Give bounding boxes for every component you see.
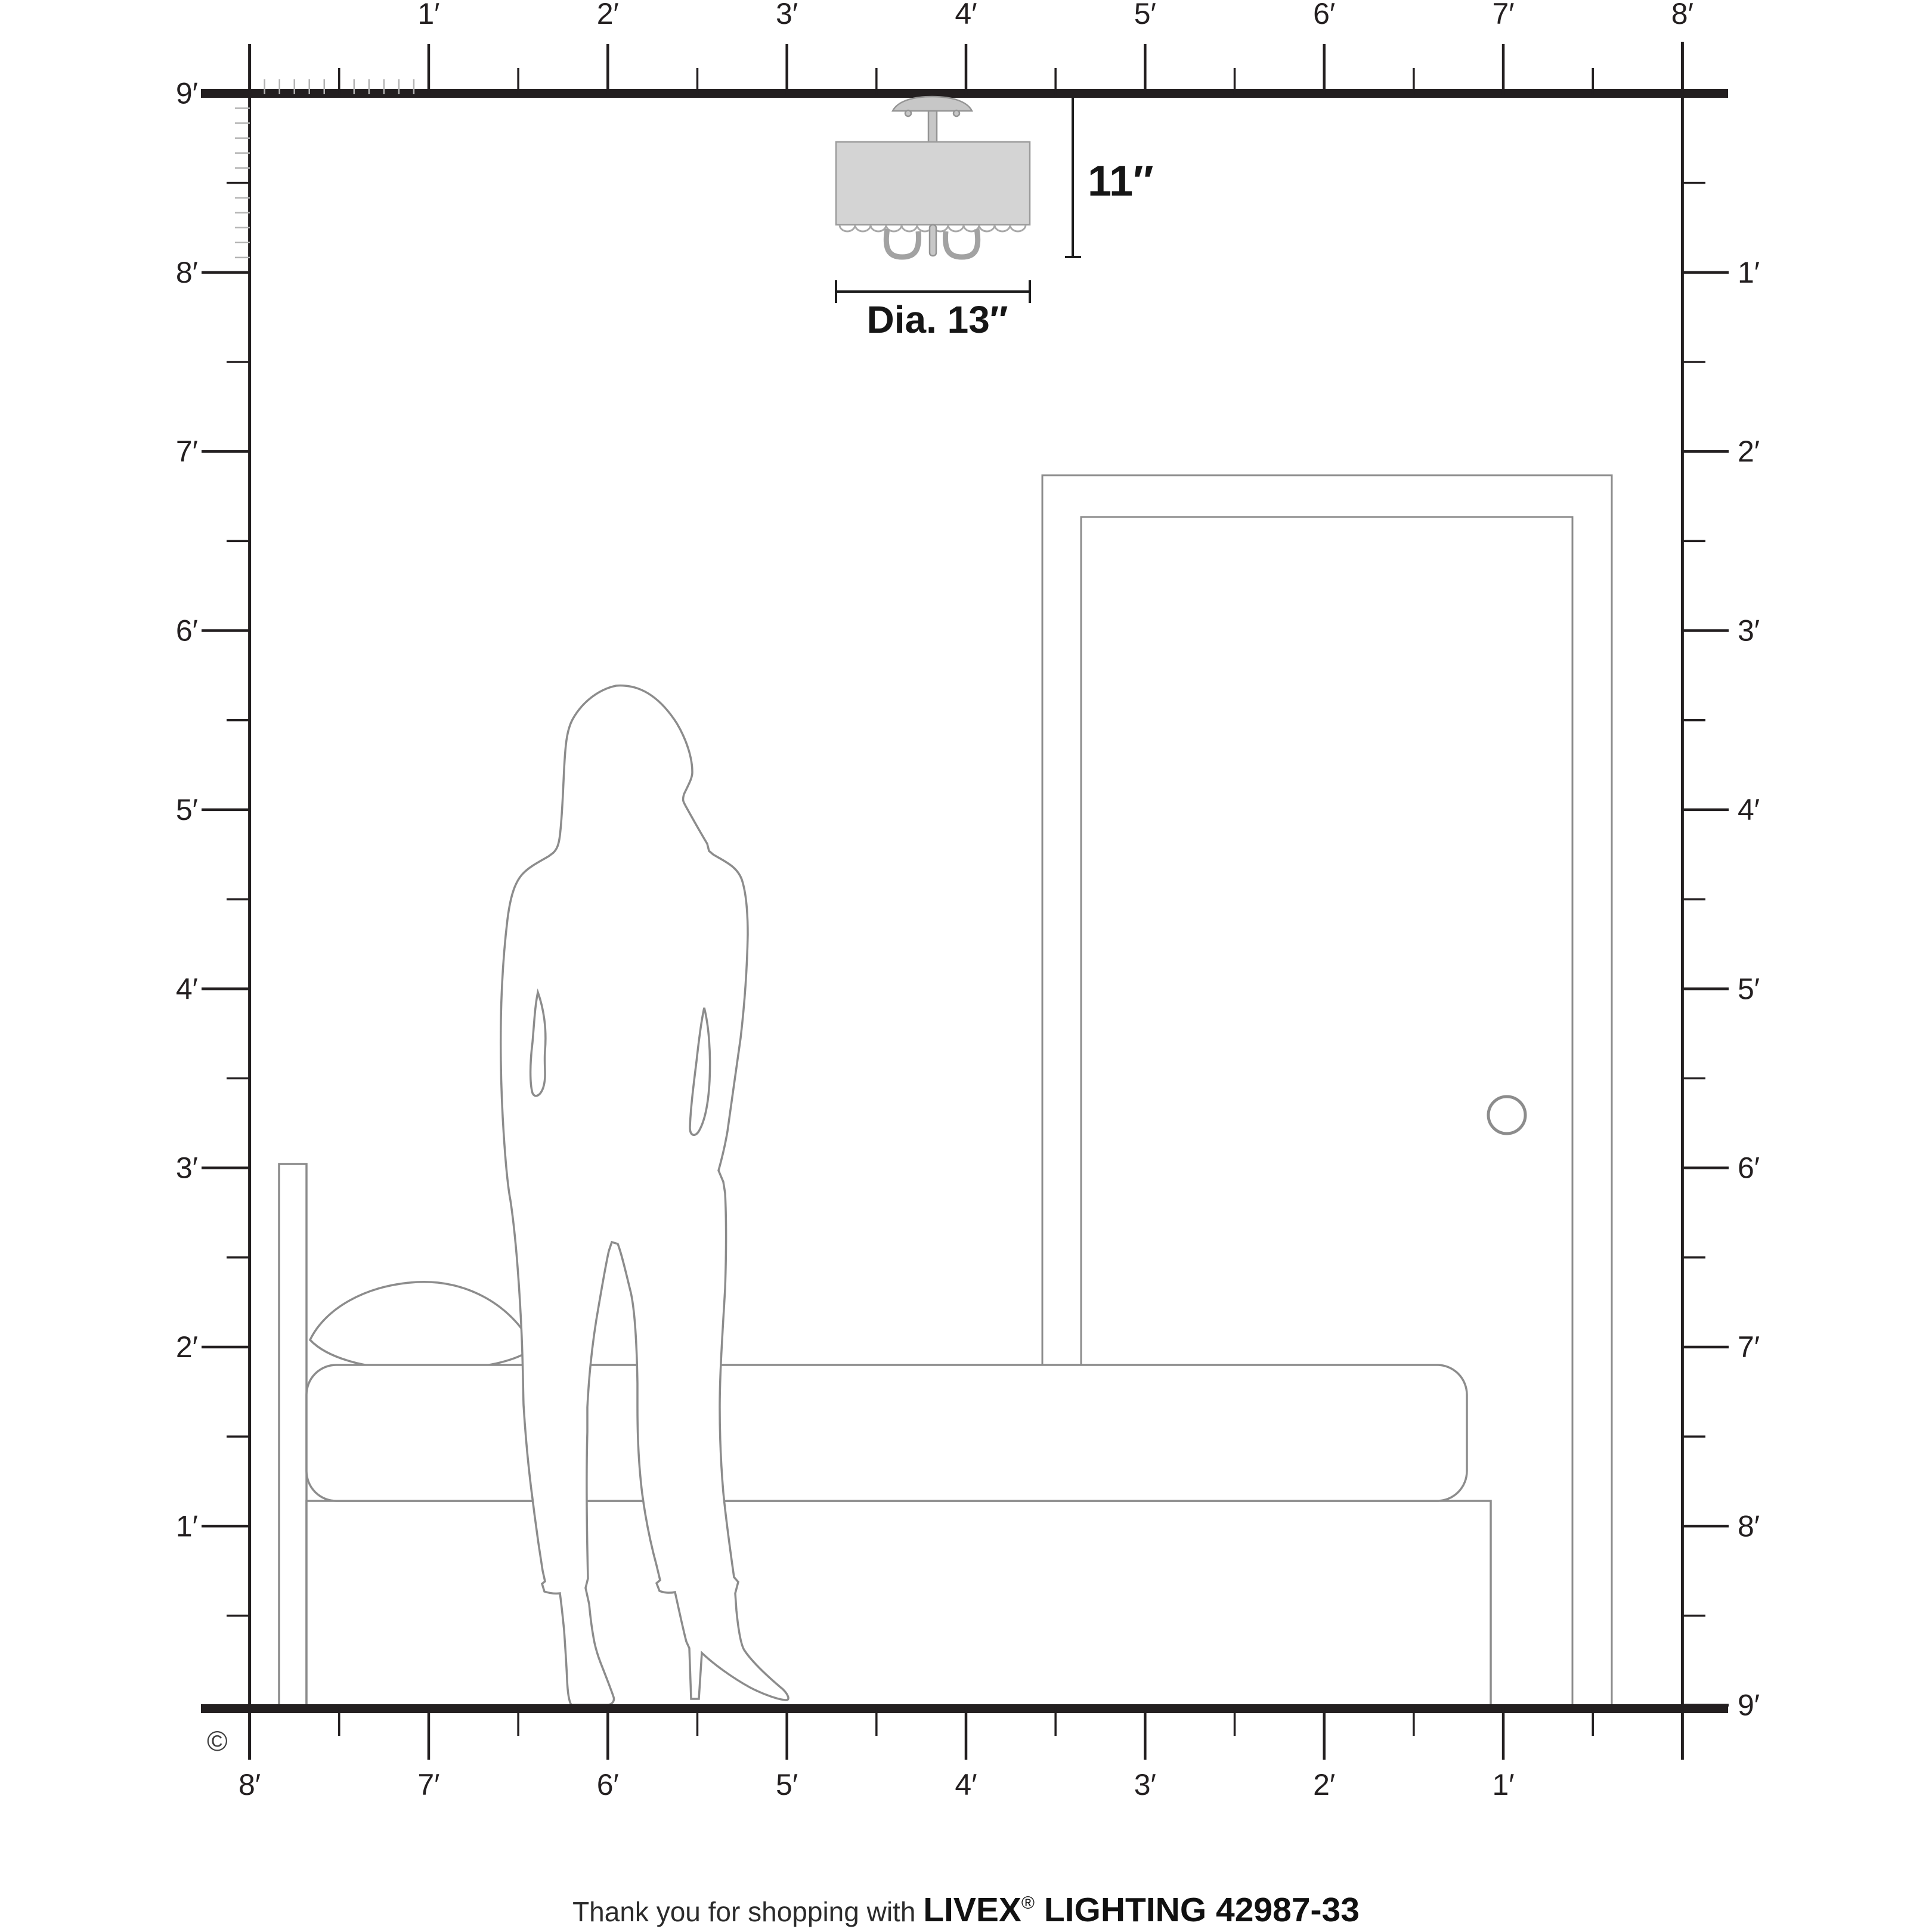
ruler-label: 2′ (1313, 1768, 1335, 1801)
right-ruler-ticks (1681, 183, 1729, 1705)
fixture-drum-shade (836, 142, 1030, 225)
ruler-label: 6′ (1738, 1151, 1760, 1185)
bed-base (306, 1501, 1491, 1705)
ruler-label: 5′ (1738, 972, 1760, 1005)
footer-brand: LIVEX (923, 1891, 1021, 1929)
ruler-label: 8′ (1671, 0, 1693, 30)
ruler-label: 4′ (955, 0, 977, 30)
ceiling-fixture (836, 97, 1030, 257)
copyright-mark: © (207, 1725, 228, 1757)
ruler-label: 6′ (1313, 0, 1335, 30)
fixture-canopy-finial-left (905, 110, 911, 116)
ruler-label: 5′ (176, 793, 198, 826)
ruler-label: 3′ (1134, 1768, 1156, 1801)
ruler-label: 2′ (176, 1330, 198, 1364)
left-ruler-ticks (202, 109, 251, 1616)
ruler-label: 3′ (176, 1151, 198, 1185)
ruler-label: 7′ (1738, 1330, 1760, 1364)
ruler-label: 1′ (417, 0, 439, 30)
ruler-label: 9′ (176, 77, 198, 110)
ruler-label: 7′ (176, 435, 198, 468)
footer-text: Thank you for shopping with LIVEX® LIGHT… (572, 1891, 1360, 1929)
footer-model-number: LIGHTING 42987-33 (1035, 1891, 1360, 1929)
ruler-label: 8′ (239, 1768, 261, 1801)
ruler-label: 6′ (597, 1768, 619, 1801)
ruler-label: 4′ (176, 972, 198, 1005)
bed-headboard (279, 1164, 306, 1705)
ruler-label: 2′ (1738, 435, 1760, 468)
top-ruler-ticks (265, 44, 1683, 95)
ruler-label: 3′ (1738, 614, 1760, 648)
bottom-ruler-ticks (250, 1707, 1593, 1760)
fixture-scroll-arm-right (945, 229, 977, 257)
ruler-label: 8′ (1738, 1509, 1760, 1543)
door-knob (1488, 1097, 1525, 1134)
fixture-scroll-arm-left (886, 229, 918, 257)
ruler-label: 5′ (776, 1768, 798, 1801)
ruler-label: 2′ (597, 0, 619, 30)
room-scale-diagram: 1′2′3′4′5′6′7′8′ 9′8′7′6′5′4′3′2′1′ 1′2′… (0, 0, 1932, 1932)
ruler-label: 9′ (1738, 1689, 1760, 1722)
left-ruler-labels: 9′8′7′6′5′4′3′2′1′ (176, 77, 198, 1543)
bed-mattress (306, 1365, 1467, 1501)
ruler-label: 1′ (1492, 1768, 1514, 1801)
ruler-label: 5′ (1134, 0, 1156, 30)
ruler-label: 7′ (1492, 0, 1514, 30)
height-dimension-label: 11″ (1088, 157, 1154, 205)
ruler-label: 4′ (955, 1768, 977, 1801)
bed-pillow (310, 1282, 531, 1370)
ruler-label: 7′ (417, 1768, 439, 1801)
diameter-dimension-label: Dia. 13″ (867, 298, 1008, 341)
fixture-canopy-finial-right (953, 110, 959, 116)
ruler-label: 8′ (176, 256, 198, 289)
top-ruler-labels: 1′2′3′4′5′6′7′8′ (417, 0, 1693, 30)
fixture-stem (928, 111, 937, 143)
fixture-canopy (893, 97, 972, 111)
ruler-label: 6′ (176, 614, 198, 648)
scale-diagram-page: 1′2′3′4′5′6′7′8′ 9′8′7′6′5′4′3′2′1′ 1′2′… (0, 0, 1932, 1932)
right-ruler-labels: 1′2′3′4′5′6′7′8′9′ (1738, 256, 1760, 1722)
ruler-label: 3′ (776, 0, 798, 30)
ruler-label: 4′ (1738, 793, 1760, 826)
bottom-ruler-labels: 8′7′6′5′4′3′2′1′ (239, 1768, 1515, 1801)
footer-registered-icon: ® (1021, 1893, 1035, 1913)
fixture-center-drop (930, 225, 936, 256)
ruler-label: 1′ (1738, 256, 1760, 289)
ruler-label: 1′ (176, 1509, 198, 1543)
footer-thankyou: Thank you for shopping with (572, 1896, 923, 1927)
